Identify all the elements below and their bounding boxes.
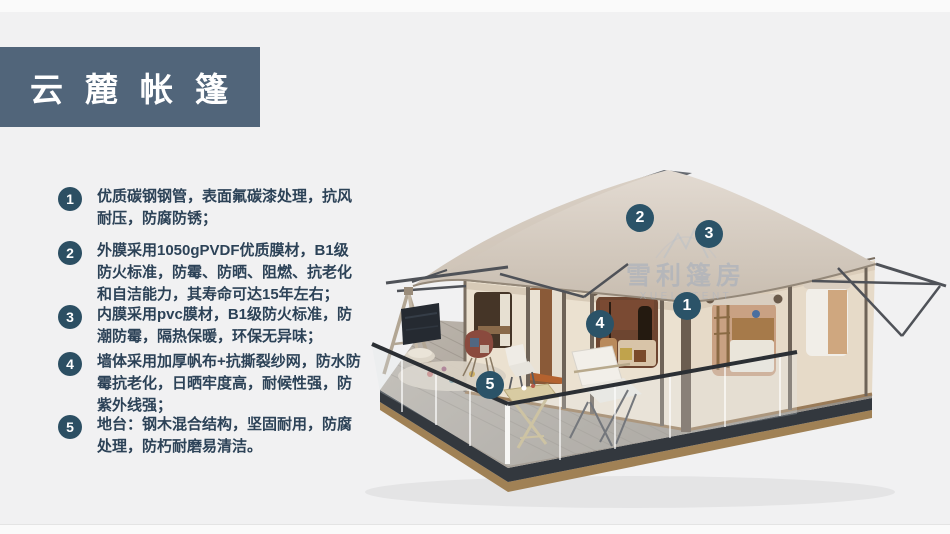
watermark-cn: 雪利篷房 [626, 261, 746, 290]
title-banner: 云麓帐篷 [0, 47, 260, 127]
slide: 雪利篷房 XUELI TENT 云麓帐篷 1 优质碳钢钢管，表面氟碳漆处理，抗风… [0, 0, 950, 534]
feature-text-4: 墙体采用加厚帆布+抗撕裂纱网，防水防霉抗老化，日晒牢度高，耐候性强，防紫外线强； [97, 351, 361, 417]
feature-item-4: 4 墙体采用加厚帆布+抗撕裂纱网，防水防霉抗老化，日晒牢度高，耐候性强，防紫外线… [58, 351, 370, 417]
page-title: 云麓帐篷 [30, 63, 250, 111]
feature-text-3: 内膜采用pvc膜材，B1级防火标准，防潮防霉，隔热保暖，环保无异味； [97, 304, 361, 348]
feature-bullet-5: 5 [58, 415, 82, 439]
window-right-far [803, 279, 851, 356]
feature-bullet-2: 2 [58, 241, 82, 265]
feature-text-1: 优质碳钢钢管，表面氟碳漆处理，抗风耐压，防腐防锈； [97, 186, 361, 230]
callout-marker-3: 3 [695, 220, 723, 248]
feature-text-5: 地台：钢木混合结构，坚固耐用，防腐处理，防朽耐磨易清洁。 [97, 414, 361, 458]
callout-marker-5: 5 [476, 371, 504, 399]
feature-item-3: 3 内膜采用pvc膜材，B1级防火标准，防潮防霉，隔热保暖，环保无异味； [58, 304, 370, 348]
feature-text-2: 外膜采用1050gPVDF优质膜材，B1级防火标准，防霉、防晒、阻燃、抗老化和自… [97, 240, 361, 306]
feature-item-2: 2 外膜采用1050gPVDF优质膜材，B1级防火标准，防霉、防晒、阻燃、抗老化… [58, 240, 370, 306]
feature-bullet-1: 1 [58, 187, 82, 211]
callout-marker-2: 2 [626, 204, 654, 232]
page-margin-bottom [0, 524, 950, 534]
feature-item-1: 1 优质碳钢钢管，表面氟碳漆处理，抗风耐压，防腐防锈； [58, 186, 370, 230]
feature-bullet-3: 3 [58, 305, 82, 329]
callout-marker-4: 4 [586, 310, 614, 338]
feature-item-5: 5 地台：钢木混合结构，坚固耐用，防腐处理，防朽耐磨易清洁。 [58, 414, 370, 458]
feature-bullet-4: 4 [58, 352, 82, 376]
callout-marker-1: 1 [673, 292, 701, 320]
